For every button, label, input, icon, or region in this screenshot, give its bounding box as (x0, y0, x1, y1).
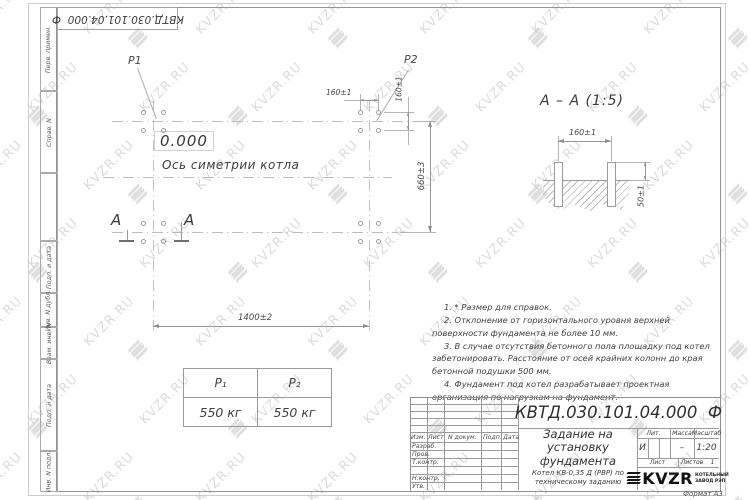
note-2: 2. Отклонение от горизонтального уровня … (432, 314, 724, 340)
strip-label: Инв. N подл. (46, 450, 53, 492)
tb-grid-line (410, 411, 518, 412)
section-title: А – А (1:5) (540, 93, 624, 109)
bolt-hole (141, 221, 146, 226)
p1-label: P1 (128, 54, 142, 67)
strip-cell-inv-podl: Инв. N подл. (40, 450, 58, 492)
column-axis-right (369, 100, 370, 332)
kvzr-logo-sub1: КОТЕЛЬНЫЙ (695, 473, 729, 478)
section-dim-protrusion-line (645, 162, 646, 180)
strip-cell-vzam-inv: Взам. инв. N (40, 326, 58, 360)
p2-label: P2 (404, 53, 418, 66)
tb-lit-label: Лит. (637, 428, 670, 438)
bolt-axis-bottom (112, 232, 398, 233)
tb-lit-value: И (637, 438, 648, 458)
ext-line (384, 130, 414, 131)
tb-grid-line (410, 466, 518, 467)
kvzr-logo-sub2: ЗАВОД РЭП (695, 479, 726, 484)
bolt-hole (161, 128, 166, 133)
strip-cell-empty (40, 172, 58, 242)
designation-top-box: КВТД.030.101.04.000 Ф (57, 7, 178, 30)
dimension-width-text: 1400±2 (238, 313, 272, 323)
tb-col-izm: Изм. (411, 434, 426, 441)
kvzr-logo-text: KVZR (642, 469, 693, 488)
dimension-height-text: 660±3 (417, 162, 427, 191)
ext-line (384, 112, 414, 113)
section-cut-stroke (119, 240, 134, 242)
tb-sheets-value: 1 (706, 458, 719, 467)
strip-cell-podp-data-1: Подп. и дата (40, 240, 58, 294)
bolt-hole (161, 110, 166, 115)
tb-designation: КВТД.030.101.04.000 Ф (518, 397, 719, 428)
tb-grid-line (659, 438, 660, 458)
bolt-hole (141, 110, 146, 115)
dimension-height-line (430, 121, 431, 232)
bolt-hole (141, 239, 146, 244)
section-mark-letter-left: А (111, 211, 121, 229)
anchor-bolt-right (607, 162, 616, 207)
tb-doc-title: Задание на установку фундамента (522, 430, 634, 466)
dimension-bolt-y-line (408, 112, 409, 130)
dimension-width-line (153, 326, 369, 327)
symmetry-axis (103, 177, 392, 178)
bolt-hole (376, 221, 381, 226)
tb-row-tkontr: Т.контр. (412, 459, 439, 466)
anchor-bolt-left (554, 162, 563, 207)
bolt-hole (358, 221, 363, 226)
ext-line (378, 94, 379, 110)
note-3: 3. В случае отсутствия бетонного пола пл… (432, 340, 724, 379)
dimension-bolt-x-text: 160±1 (326, 88, 351, 97)
tb-sheet-label: Лист (637, 458, 678, 467)
kvzr-logo-icon (627, 471, 640, 486)
section-dim-protrusion-text: 50±1 (637, 185, 646, 207)
dim-tail (408, 130, 409, 145)
bolt-hole (376, 239, 381, 244)
tb-mass-value: – (670, 438, 694, 458)
bolt-hole (376, 128, 381, 133)
dim-tail (408, 97, 409, 112)
strip-cell-sprav: Справ. N (40, 90, 58, 174)
strip-label: Подп. и дата (46, 246, 53, 289)
section-dim-spacing-line (558, 141, 611, 142)
level-mark: 0.000 (154, 131, 214, 151)
note-1: 1. * Размер для справок. (432, 301, 724, 314)
tb-grid-line (410, 418, 518, 419)
drawing-sheet: KVZR.RUKVZR.RUKVZR.RUKVZR.RUKVZR.RUKVZR.… (0, 0, 750, 500)
load-table-value-p1: 550 кг (184, 398, 258, 427)
notes: 1. * Размер для справок. 2. Отклонение о… (432, 301, 724, 404)
load-table-header-p1: Р₁ (184, 369, 258, 398)
ext-line (629, 180, 650, 181)
tb-logo-cell: KVZR КОТЕЛЬНЫЙ ЗАВОД РЭП (637, 467, 719, 490)
bolt-hole (161, 239, 166, 244)
dimension-bolt-x-line (360, 100, 378, 101)
strip-cell-podp-data-2: Подп. и дата (40, 358, 58, 452)
symmetry-axis-label: Ось симетрии котла (162, 158, 299, 172)
ext-line (360, 94, 361, 110)
strip-label: Подп. и дата (46, 384, 53, 427)
bolt-hole (358, 110, 363, 115)
tb-col-data: Дата (503, 434, 519, 441)
tb-grid-line (410, 425, 518, 426)
tb-mass-label: Масса (670, 428, 694, 438)
tb-grid-line (410, 404, 518, 405)
dimension-bolt-y-text: 160±1 (395, 76, 404, 101)
load-table-value-p2: 550 кг (258, 398, 332, 427)
tb-row-prov: Пров. (412, 451, 430, 458)
ext-line (400, 232, 436, 233)
load-table-header-row: Р₁ Р₂ (184, 369, 332, 398)
tb-row-nkontr: Н.контр. (412, 475, 440, 482)
kvzr-logo-subtext: КОТЕЛЬНЫЙ ЗАВОД РЭП (695, 473, 729, 484)
tb-product: Котел КВ-0,35 Д (РВР) по техническому за… (520, 467, 636, 489)
section-dim-spacing-text: 160±1 (569, 128, 596, 137)
strip-label: Справ. N (46, 118, 53, 147)
designation-top-text: КВТД.030.101.04.000 Ф (52, 13, 184, 25)
load-table: Р₁ Р₂ 550 кг 550 кг (183, 368, 332, 427)
load-table-header-p2: Р₂ (258, 369, 332, 398)
section-cut-stroke (174, 240, 189, 242)
bolt-hole (358, 128, 363, 133)
ext-line (611, 136, 612, 161)
load-table-value-row: 550 кг 550 кг (184, 398, 332, 427)
tb-grid-line (410, 432, 518, 433)
tb-scale-value: 1:20 (694, 438, 719, 458)
tb-row-utv: Утв. (412, 483, 425, 490)
bolt-hole (141, 128, 146, 133)
tb-col-list: Лист (428, 434, 444, 441)
tb-row-razrab: Разраб. (412, 443, 436, 450)
dim-tail (344, 100, 360, 101)
tb-col-podp: Подп. (483, 434, 502, 441)
tb-col-ndocum: N докум. (448, 434, 477, 441)
strip-label: Перв. примен. (46, 26, 53, 73)
tb-grid-line (648, 438, 649, 458)
tb-grid-line (410, 482, 518, 483)
ext-line (414, 121, 436, 122)
bolt-hole (358, 239, 363, 244)
tb-scale-label: Масштаб (694, 428, 719, 438)
format-label: Формат А3 (683, 490, 723, 498)
tb-sheets-label: Листов (678, 458, 706, 467)
section-mark-letter-right: А (184, 211, 194, 229)
bolt-hole (376, 110, 381, 115)
bolt-hole (161, 221, 166, 226)
bolt-axis-top (112, 121, 433, 122)
section-cut-line (181, 222, 182, 241)
